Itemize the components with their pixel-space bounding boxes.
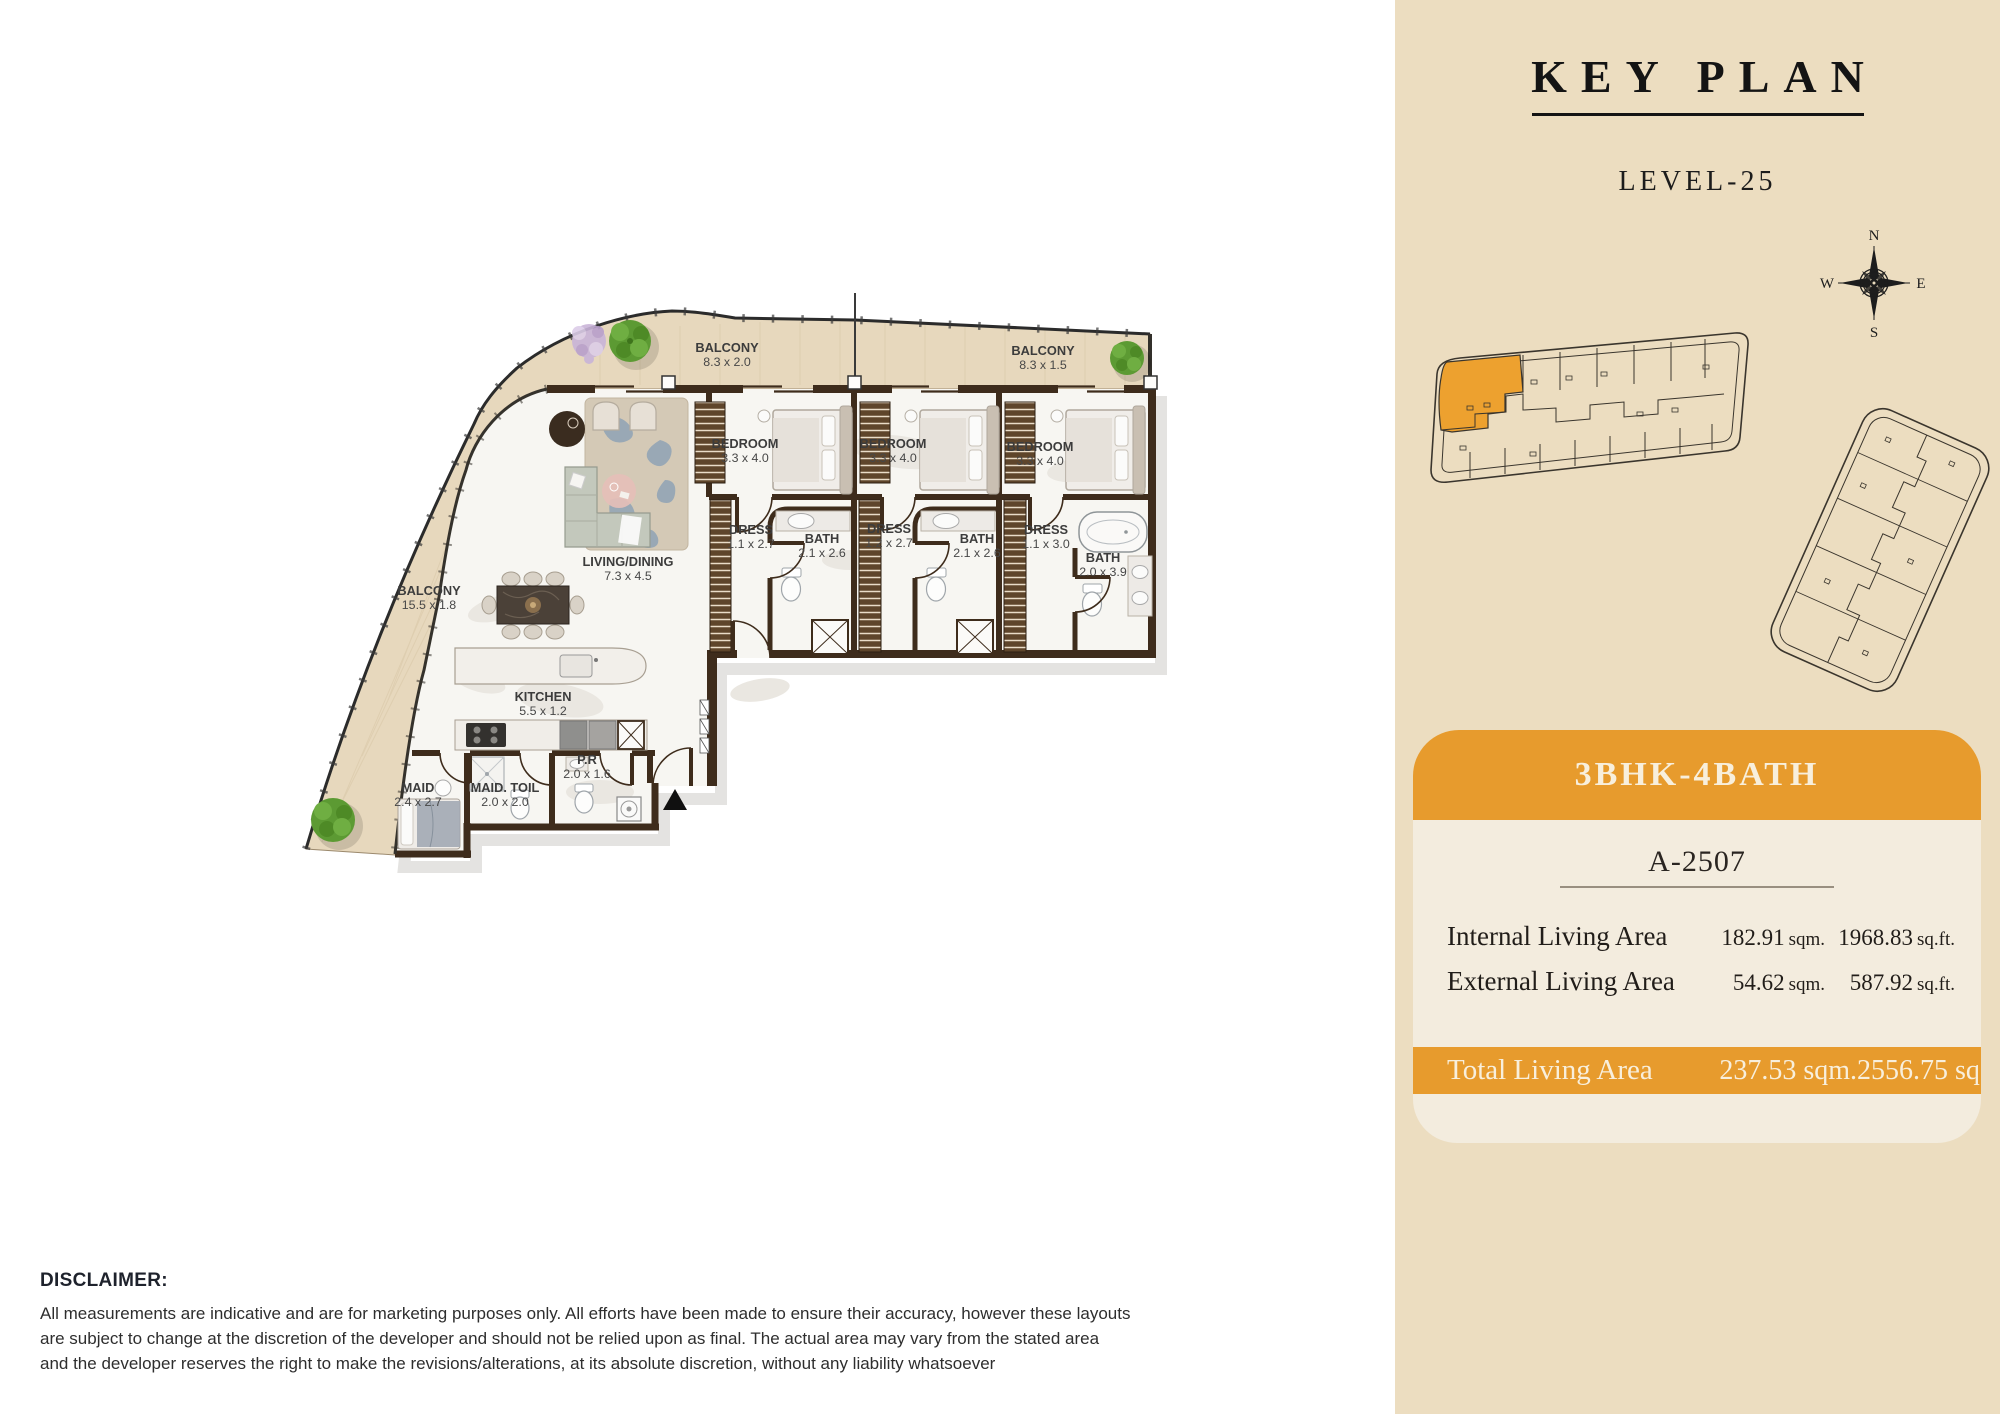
unit-card-footer (1413, 1094, 1981, 1143)
room-label: KITCHEN (515, 689, 572, 704)
disclaimer-line: and the developer reserves the right to … (40, 1351, 1370, 1376)
beds (758, 406, 1145, 494)
room-dims: 3.3 x 4.0 (1016, 454, 1064, 468)
floorplan-brochure-page: BALCONY 8.3 x 2.0 BALCONY 8.3 x 1.5 BEDR… (0, 0, 2000, 1414)
room-dims: 1.2 x 2.7 (865, 536, 913, 550)
side-table (549, 411, 585, 447)
area-value-sqm: 54.62 (1733, 970, 1785, 995)
room-label: BEDROOM (1007, 439, 1074, 454)
disclaimer: DISCLAIMER: All measurements are indicat… (40, 1270, 1370, 1376)
floor-plan-drawing: BALCONY 8.3 x 2.0 BALCONY 8.3 x 1.5 BEDR… (0, 0, 1395, 1414)
total-sqm: 237.53 sqm. (1697, 1055, 1857, 1087)
area-unit-sqm: sqm. (1789, 929, 1825, 950)
room-dims: 2.0 x 1.6 (563, 767, 611, 781)
room-dims: 3.3 x 4.0 (721, 451, 769, 465)
key-plan-graphic: N E S W (1395, 0, 2000, 1414)
building-outline-2 (1764, 402, 1996, 698)
disclaimer-heading: DISCLAIMER: (40, 1270, 1370, 1292)
area-row-external: External Living Area 54.62sqm. 587.92sq.… (1413, 966, 1981, 997)
room-dims: 1.1 x 3.0 (1022, 537, 1070, 551)
building-outline-1 (1431, 333, 1748, 482)
room-label: MAID. TOIL (471, 780, 540, 795)
room-label: BATH (1086, 550, 1121, 565)
room-dims: 7.3 x 4.5 (604, 569, 652, 583)
area-value-sqft: 587.92 (1850, 970, 1913, 995)
washer (617, 797, 641, 821)
room-dims: 15.5 x 1.8 (402, 598, 457, 612)
area-unit-sqft: sq.ft. (1917, 974, 1955, 995)
total-label: Total Living Area (1447, 1054, 1697, 1087)
area-label: Internal Living Area (1447, 921, 1709, 952)
room-label: MAID (402, 780, 435, 795)
room-label: LIVING/DINING (582, 554, 673, 569)
room-dims: 2.0 x 3.9 (1079, 565, 1127, 579)
room-label: DRESS (729, 522, 774, 537)
area-unit-sqft: sq.ft. (1917, 929, 1955, 950)
room-label: BALCONY (397, 583, 461, 598)
area-unit-sqm: sqm. (1789, 974, 1825, 995)
room-label: DRESS (867, 521, 912, 536)
room-dims: 2.1 x 2.6 (953, 546, 1001, 560)
total-sqft: 2556.75 sq.ft. (1857, 1055, 1981, 1087)
room-dims: 1.1 x 2.7 (727, 537, 775, 551)
area-label: External Living Area (1447, 966, 1709, 997)
unit-number: A-2507 (1413, 845, 1981, 879)
room-label: DRESS (1024, 522, 1069, 537)
compass-icon: N E S W (1820, 228, 1926, 341)
room-label: BATH (805, 531, 840, 546)
compass-n-label: N (1869, 228, 1880, 244)
compass-e-label: E (1916, 276, 1925, 292)
room-dims: 2.0 x 2.0 (481, 795, 529, 809)
room-label: BALCONY (695, 340, 759, 355)
room-dims: 8.3 x 2.0 (703, 355, 751, 369)
unit-info-card: 3BHK-4BATH A-2507 Internal Living Area 1… (1413, 730, 1981, 1143)
room-dims: 8.3 x 1.5 (1019, 358, 1067, 372)
room-label: BATH (960, 531, 995, 546)
room-label: BEDROOM (712, 436, 779, 451)
highlighted-unit (1439, 355, 1523, 432)
room-dims: 3.3 x 4.0 (869, 451, 917, 465)
unit-number-underline (1560, 886, 1834, 888)
total-living-area-bar: Total Living Area 237.53 sqm. 2556.75 sq… (1413, 1047, 1981, 1094)
unit-type-header: 3BHK-4BATH (1413, 730, 1981, 820)
area-value-sqm: 182.91 (1721, 925, 1784, 950)
compass-w-label: W (1820, 276, 1835, 292)
area-row-internal: Internal Living Area 182.91sqm. 1968.83s… (1413, 921, 1981, 952)
disclaimer-line: are subject to change at the discretion … (40, 1326, 1370, 1351)
room-dims: 2.1 x 2.6 (798, 546, 846, 560)
round-rug (602, 474, 636, 508)
area-value-sqft: 1968.83 (1838, 925, 1913, 950)
room-label: P.R (577, 752, 597, 767)
disclaimer-line: All measurements are indicative and are … (40, 1301, 1370, 1326)
compass-s-label: S (1870, 325, 1878, 341)
living-furniture (549, 398, 688, 550)
room-label: BALCONY (1011, 343, 1075, 358)
key-plan-panel: KEY PLAN LEVEL-25 (1395, 0, 2000, 1414)
room-label: BEDROOM (860, 436, 927, 451)
unit-card-body: A-2507 Internal Living Area 182.91sqm. 1… (1413, 820, 1981, 1047)
room-dims: 5.5 x 1.2 (519, 704, 567, 718)
room-dims: 2.4 x 2.7 (394, 795, 442, 809)
